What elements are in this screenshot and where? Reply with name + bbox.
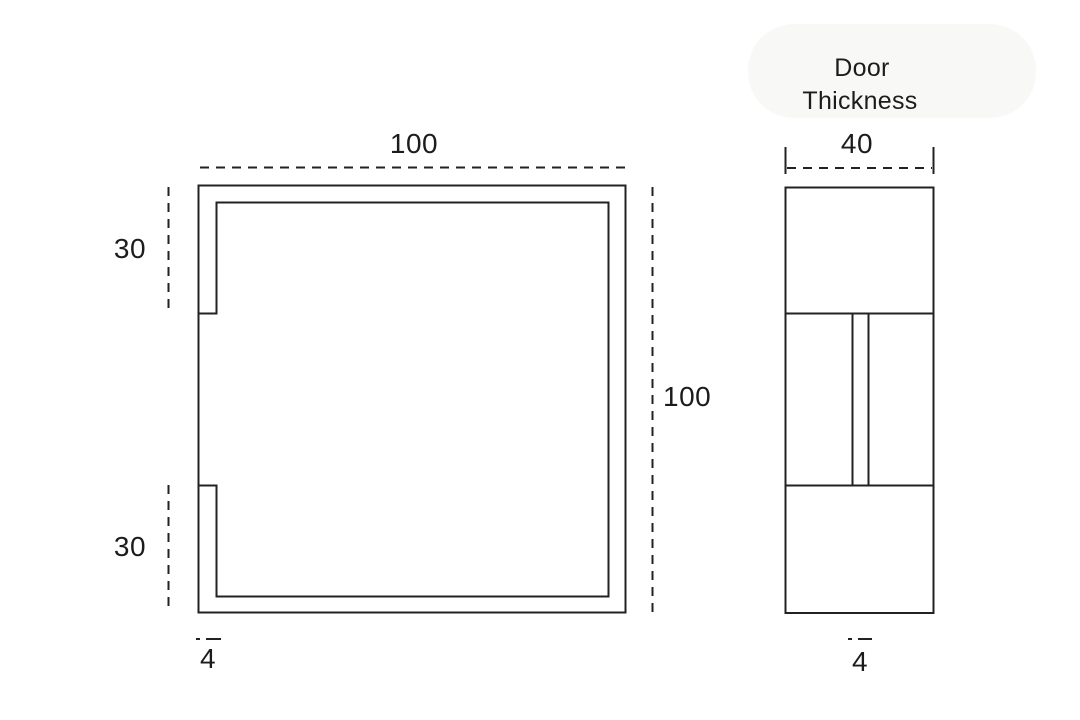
side-caption-line2: Thickness [802,87,917,115]
front-inner-wall [199,203,609,597]
technical-drawing-canvas: 100 100 30 30 4 Door Thickness 40 [0,0,1080,720]
front-dim-top-offset-label: 30 [114,233,146,264]
front-view: 100 100 30 30 4 [114,128,711,674]
door-pull-dimension-diagram: 100 100 30 30 4 Door Thickness 40 [0,0,1080,720]
front-dim-bottom-offset-label: 30 [114,531,146,562]
front-dim-width-label: 100 [390,128,438,159]
side-view: Door Thickness 40 4 [786,54,934,677]
front-dim-wall-label: 4 [200,643,216,674]
side-dim-slot-label: 4 [852,646,868,677]
front-dim-height-label: 100 [663,381,711,412]
side-outer-rect [786,188,934,614]
front-outer-square [199,186,626,613]
side-caption-line1: Door [834,54,889,82]
side-dim-width-label: 40 [841,128,873,159]
